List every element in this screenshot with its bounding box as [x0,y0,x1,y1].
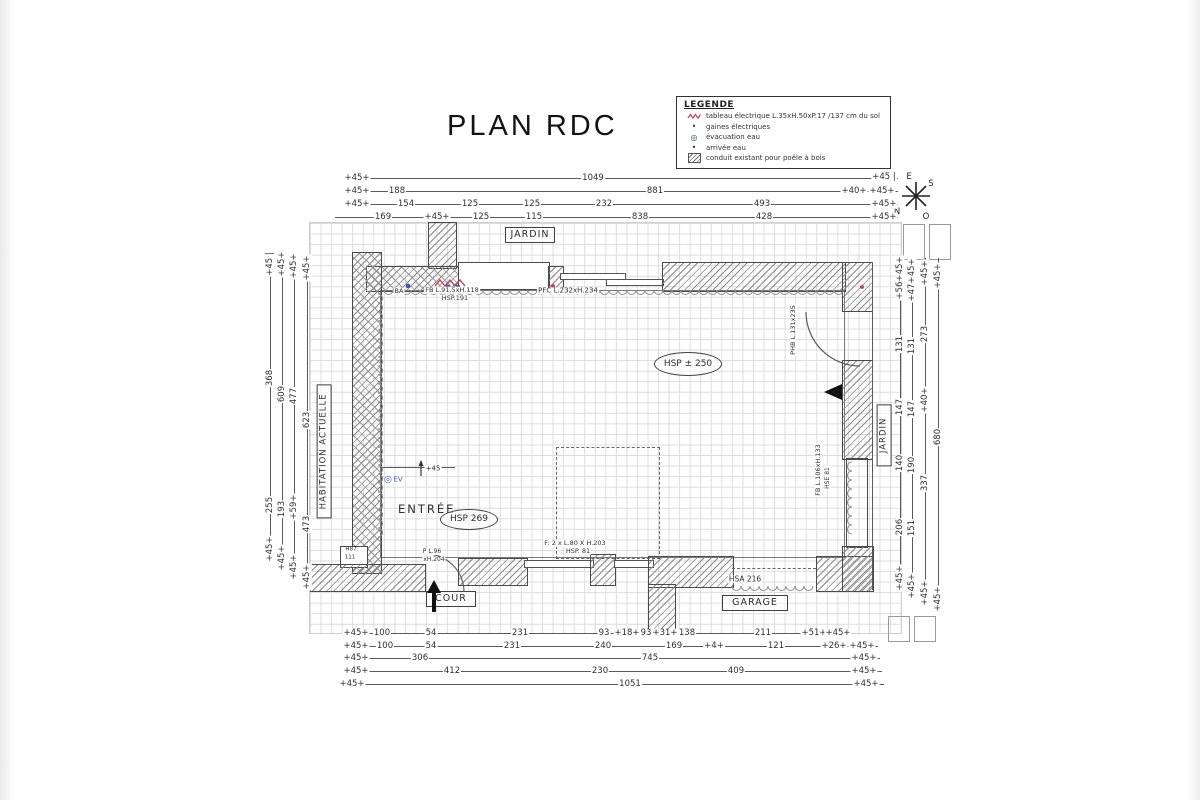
legend-item: tableau électrique L.35xH.50xP.17 /137 c… [686,111,886,122]
room-label-cour: COUR [426,591,476,607]
compass-rose [902,182,930,210]
legend-item: conduit existant pour poêle à bois [686,153,886,164]
electrical-duct-dot [446,285,450,289]
dimension-line [348,671,882,672]
electrical-dot [860,285,864,289]
dim-label: +45 | [871,173,897,182]
dimension-line [912,258,913,596]
electrical-dot [551,284,555,288]
dimension-line [335,217,898,218]
dimension-line [350,191,898,192]
wall-chimney-conduit [428,222,457,269]
wall-right-outer-line [872,262,873,590]
window-fb2-frame [846,458,868,548]
wall-bottom-left-band [310,564,426,592]
dashed-partition [556,447,660,559]
electrical-panel-zigzag-icon [686,113,702,120]
neighbour-wall-box [914,616,936,642]
wall-right-mid-pillar [842,360,873,460]
dimension-line [350,204,898,205]
room-label-jardin-right: JARDIN [877,404,892,466]
compass-n: N [894,207,900,217]
window-f-bar [524,560,594,568]
compass-o: O [923,212,930,222]
scanned-floor-plan-page: { "title": "PLAN RDC", "legend": { "titl… [0,0,1200,800]
electrical-duct-dot [406,284,410,288]
legend-item: • arrivée eau [686,143,886,154]
electrical-duct-dot [456,285,460,289]
scan-edge-right [1186,0,1200,800]
wall-top-annex [458,262,550,290]
dimension-line [348,658,880,659]
dot-icon: • [686,143,702,152]
dimension-line [350,178,898,179]
compass-e: E [906,172,911,182]
wall-right-top-pillar [842,262,873,312]
dimension-line [348,633,845,634]
dimension-line [270,258,271,560]
ceiling-height-entree: HSP 269 [440,509,498,530]
wall-bottom-segment1 [458,558,528,586]
wall-left [352,252,382,574]
garage-lintel-dashed [732,568,816,569]
ceiling-height-sejour: HSP ± 250 [654,352,722,376]
opening-pfc-bar [606,279,664,286]
dimension-line [348,646,878,647]
ring-icon: ◎ [686,133,702,142]
wall-right-bottom [842,546,874,592]
room-label-habitation-actuelle: HABITATION ACTUELLE [317,384,332,518]
room-label-garage: GARAGE [722,595,788,611]
legend-item: ◎ évacuation eau [686,132,886,143]
level-step-line [380,467,455,468]
dimension-line [925,258,926,603]
legend-title: LEGENDE [684,100,890,110]
water-evacuation-icon: ◎ [384,475,392,485]
dimension-line [342,684,884,685]
dimension-line [282,258,283,568]
neighbour-wall-box [929,224,951,260]
legend-box: LEGENDE tableau électrique L.35xH.50xP.1… [676,96,891,169]
dot-icon: • [686,122,702,131]
scan-edge-left [0,0,14,800]
legend-item: • gaines électriques [686,122,886,133]
room-label-jardin-top: JARDIN [505,227,555,243]
page-title: PLAN RDC [447,110,618,143]
wall-garage-left [648,584,676,634]
dimension-line [294,258,295,576]
wall-top-right [662,262,846,292]
dimension-line [900,258,901,588]
hatch-box-icon [686,153,702,163]
dimension-line [307,258,308,584]
neighbour-wall-box [888,616,910,642]
neighbour-wall-box [903,224,925,260]
dimension-line [938,258,939,609]
compass-s: S [928,179,933,189]
